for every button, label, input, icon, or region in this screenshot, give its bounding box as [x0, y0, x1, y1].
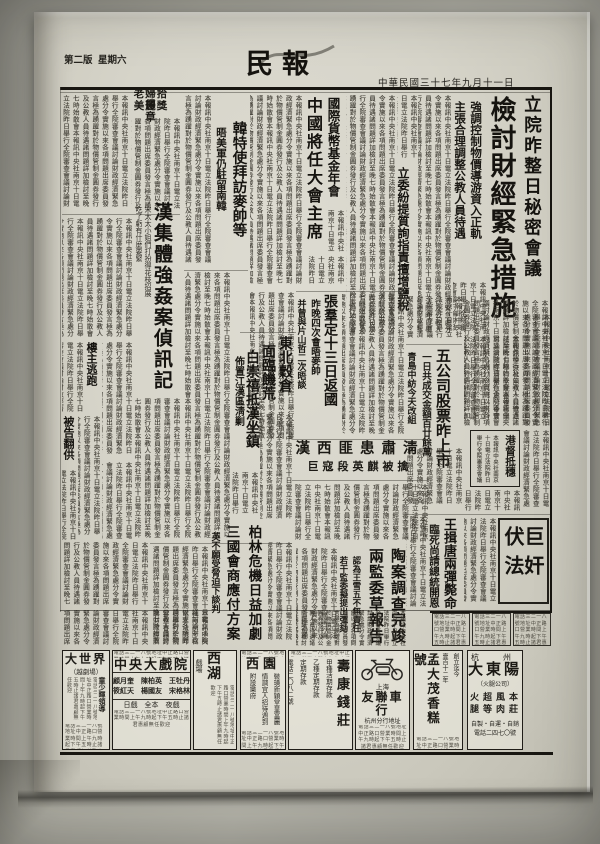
weekday-label: 星期六 [98, 52, 127, 66]
divider [60, 610, 552, 611]
ad-zhongyang-cast-row2: 筱紅天 楊國友 宋格林 [113, 686, 190, 696]
ad-body-text: 電話三二一八號地址中正路口營業時間上午九時起下午五時止諸君惠顧無任歡迎 [289, 651, 352, 657]
imf-kicker: 國際貨幣基金年會 [326, 97, 339, 207]
rape-case-subhead-2: 被告翻供 [62, 416, 73, 466]
berlin-subheadline: 英不願受脅迫下談判 [210, 532, 219, 640]
ad-dadongyang-sub: （火腿公司） [468, 679, 522, 688]
left-frame-rule [60, 87, 61, 612]
divider [150, 543, 292, 544]
ad-body-text: 電話三二一八號地址中正路口營業時間上午九時起下午五時止諸君惠顧無任歡迎 [65, 677, 97, 721]
body-text: 本報訊中央社南京十日電立法院昨日舉行全院審查會議討論財政經濟緊急處分令實施以來各… [326, 210, 344, 256]
ad-body-text: 電話三二一八號地址中正路口營業時間上午九時起下午五時止諸君惠顧無任歡迎 [113, 710, 190, 730]
body-text: 本報訊中央社南京十日電立法院昨日舉行全院審查會議討論財政經濟緊急處分令實施以來各… [306, 256, 344, 290]
ad-mengdamao-cake-shop: 創立迄今 壹百十二年 孟大茂香糕號 ※土產馳譽 ※獨步第一 電話三二一八號地址中… [413, 650, 463, 750]
body-text: 本報訊中央社南京十日電立法院昨日舉行全院審查會議討論財政經濟緊急處分令實施以來各… [260, 414, 292, 520]
ad-shoukang-phone: 電話二〇八二號 [288, 659, 293, 745]
ad-xihu-sub: 戲場 [194, 659, 204, 677]
bandit-headline: 漢西匪患肅淸 [292, 442, 428, 457]
masthead-title: 民報 [246, 42, 318, 81]
ad-body-text: 電話三二一八號地址中正路口營業時間上午九時起下午五時止諸君惠顧無任歡迎 [63, 724, 109, 750]
ad-zhongyang-theater: 電話三二一八號地址中正路口營業時間上午九時起下午五時止諸君惠顧無任歡迎 中央大戲… [112, 650, 191, 750]
ad-shoukang-line2: 乙種定期存款 [309, 659, 319, 745]
body-text: 本報訊中央社南京十日電立法院昨日舉行全院審查會議討論財政經濟緊急處分令實施以來各… [78, 416, 100, 540]
zhangqun-headline: 張羣定十三日返國 [322, 294, 336, 426]
ad-body-text: 電話三二一八號地址中正路口營業時間上午九時起下午五時止諸君惠顧無任歡迎 [414, 737, 462, 750]
ad-youlian-bicycle-shop: 上海 友聯車行 杭州分行地址 電話三二一八號地址中正路口營業時間上午九時起下午五… [355, 650, 410, 750]
ad-mengdamao-kicker-1: 創立迄今 [451, 653, 460, 735]
divider [184, 270, 248, 271]
body-text: 本報訊中央社南京十日電立法院昨日舉行全院審查會議討論財政經濟緊急處分令實施以來各… [406, 516, 426, 608]
body-text: 本報訊中央社南京十日電立法院昨日舉行全院審查會議討論財政經濟緊急處分令實施以來各… [268, 542, 292, 646]
ad-xiyuan-line2: 情調宜人招待週到 [258, 673, 268, 731]
body-text: 本報訊中央社南京十日電立法院昨日舉行全院審查會議討論財政經濟緊急處分令實施以來各… [134, 398, 180, 542]
body-text: 本報訊中央社南京十日電立法院昨日舉行全院審查會議討論財政經濟緊急處分令實施以來各… [62, 542, 148, 608]
korea-subheadline: 晤美軍仍駐留南韓 [215, 127, 226, 253]
body-text: 本報訊中央社南京十日電立法院昨日舉行全院審查會議討論財政經濟緊急處分令實施以來各… [250, 95, 302, 289]
traitor-box-headline: 巨奸伏法 [502, 526, 542, 598]
lead-subheadline-2: 主張合理調整公教人員待遇 [453, 101, 465, 277]
ad-body-text: 電話三二一八號地址中正路口營業時間上午九時起下午五時止諸君惠顧無任歡迎 [356, 725, 409, 750]
divider [292, 480, 428, 481]
body-text: 本報訊中央社南京十日電立法院昨日舉行全院審查會議討論財政經濟緊急處分令實施以來各… [406, 296, 462, 342]
notice-strip: 電話三二一八號地址中正路口營業時間上午九時起下午五時止諸君惠顧無任歡迎 電話三二… [432, 613, 551, 646]
ad-shoukang-bank: 電話三二一八號地址中正路口營業時間上午九時起下午五時止諸君惠顧無任歡迎 壽康錢莊… [288, 650, 353, 750]
rape-case-intro-2: 吃了虧有什麼要緊 [134, 206, 144, 388]
ad-mengdamao-kicker-2: 壹百十二年 [440, 653, 449, 735]
ad-zhongyang-showtimes: 日戲 全本 夜戲 [113, 699, 190, 710]
body-text: 本報訊中央社南京十日電立法院昨日舉行全院審查會議討論財政經濟緊急處分令實施以來各… [232, 472, 258, 520]
lead-headline: 檢討財經緊急措施 [488, 96, 514, 334]
traitor-headline: 王揖唐兩彈斃命 [443, 518, 456, 618]
ad-body-text: 電話三二一八號地址中正路口營業時間上午九時起下午五時止諸君惠顧無任歡迎 [196, 685, 234, 747]
ad-dadongyang-line: 自製・自運・自銷 [468, 719, 522, 728]
body-text: 本報訊中央社南京十日電立法院昨日舉行全院審查會議討論財政經濟緊急處分令實施以來各… [150, 610, 208, 646]
ad-shoukang-line1: 甲種活期存款 [322, 659, 332, 745]
ad-xiyuan-name: 西園 [241, 657, 285, 671]
body-text: 本報訊中央社南京十日電立法院昨日舉行全院審查會議討論財政經濟緊急處分令實施以來各… [464, 518, 496, 608]
lead-subheadline-1: 強調控制物價導游資入正軌 [469, 101, 481, 277]
hk-governor-headline: 港督抵穗 [504, 435, 515, 483]
traitor-subheadline: 臨死尚請總統開恩 [428, 524, 439, 616]
lead-kicker: 立院昨整日秘密會議 [523, 95, 541, 310]
traitor-box: 巨奸伏法 [498, 518, 549, 604]
ad-body-text: 電話三二一八號地址中正路口營業時間上午九時起下午五時止諸君惠顧無任歡迎 [113, 651, 190, 658]
rape-case-headline: 漢集體強姦案偵訊記 [152, 202, 171, 398]
body-text: 本報訊中央社南京十日電立法院昨日舉行全院審查會議討論財政經濟緊急處分令實施以來各… [522, 430, 549, 510]
body-text: 本報訊中央社南京十日電立法院昨日舉行全院審查會議討論財政經濟緊急處分令實施以來各… [102, 342, 132, 460]
ad-xiyuan-line3: 附設樂府 [246, 673, 256, 731]
bandit-subheadline: 巨寇段英麒被擒 [298, 462, 422, 474]
ad-dadongyang-name: 大東陽 [468, 663, 522, 679]
body-text: 本報訊中央社南京十日電立法院昨日舉行全院審查會議討論財政經濟緊急處分令實施以來各… [475, 435, 499, 483]
ad-zhongyang-name: 中央大戲院 [113, 658, 190, 673]
body-text: 本報訊中央社南京十日電立法院昨日舉行全院審查會議討論財政經濟緊急處分令實施以來各… [62, 610, 148, 646]
body-text: 本報訊中央社南京十日電立法院昨日舉行全院審查會議討論財政經濟緊急處分令實施以來各… [62, 95, 128, 211]
paper-fold-shadow [18, 786, 593, 808]
notice-box: 電話三二一八號地址中正路口營業時間上午九時起下午五時止諸君惠顧無任歡迎 [472, 613, 510, 646]
divider [406, 514, 550, 515]
bottom-rule [60, 752, 553, 755]
body-text: 本報訊中央社南京十日電立法院昨日舉行全院審查會議討論財政經濟緊急處分令實施以來各… [183, 95, 211, 267]
granary-headline-line1: 東北穀倉 [277, 336, 291, 404]
body-text: 本報訊中央社南京十日電立法院昨日舉行全院審查會議討論財政經濟緊急處分令實施以來各… [464, 490, 520, 512]
body-text: 本報訊中央社南京十日電立法院昨日舉行全院審查會議討論財政經濟緊急處分令實施以來各… [102, 462, 132, 540]
stocks-subheadline-2: 青島中紡今天改組 [406, 352, 415, 446]
ad-mengdamao-name: 孟大茂香糕號 [413, 653, 438, 735]
body-text: 本報訊中央社南京十日電立法院昨日舉行全院審查會議討論財政經濟緊急處分令實施以來各… [464, 300, 548, 426]
zhangqun-subheadline-2: 并曾與片山哲二次晤談 [296, 299, 305, 421]
korea-headline: 韓特使拜訪麥帥等 [231, 121, 246, 269]
ad-xiyuan-line1: 裝璜新穎堂皇富麗 [270, 673, 280, 731]
body-text: 本報訊中央社南京十日電立法院昨日舉行全院審查會議討論財政經濟緊急處分令實施以來各… [342, 294, 404, 440]
body-text: 本報訊中央社南京十日電立法院昨日舉行全院審查會議討論財政經濟緊急處分令實施以來各… [397, 95, 417, 161]
ad-youlian-name: 友聯車行 [356, 691, 409, 716]
body-text: 本報訊中央社南京十日電立法院昨日舉行全院審查會議討論財政經濟緊急處分令實施以來各… [62, 470, 76, 540]
berlin-headline-line2: 三國會商應付方案 [225, 525, 239, 645]
bai-headline: 白崇禧抵漢坐鎮 [244, 350, 258, 470]
right-frame-rule [550, 87, 552, 612]
bai-subheadline: 佈置江漢區淸剿 [232, 356, 243, 456]
ad-xiyuan: 電話三二一八號地址中正路口營業時間上午九時起下午五時止諸君惠顧無任歡迎 西園 附… [240, 650, 286, 750]
body-text: 本報訊中央社南京十日電立法院昨日舉行全院審查會議討論財政經濟緊急處分令實施以來各… [296, 610, 406, 646]
ad-youlian-branch: 杭州分行地址 [356, 716, 409, 725]
tricycle-illustration [357, 653, 409, 681]
ad-dadongyang-phone: 電話二四七〇號 [468, 728, 522, 737]
rape-case-intro-1: 宋太太小姐們打扮得花枝招展 [143, 206, 153, 388]
ad-zhongyang-cast-row1: 顧月奎 陳柏英 王牡丹 [113, 676, 190, 686]
divider [296, 291, 406, 292]
ad-body-text: 電話三二一八號地址中正路口營業時間上午九時起下午五時止諸君惠顧無任歡迎 [241, 651, 285, 657]
ad-dashijie-line: 童少暉領導 [97, 677, 107, 721]
ad-dashijie: 大世界 （越劇場） 電話三二一八號地址中正路口營業時間上午九時起下午五時止諸君惠… [62, 650, 110, 750]
imf-headline: 中國將任大會主席 [304, 97, 320, 253]
granary-headline-line2: 面臨饑荒 [260, 344, 274, 412]
body-text: 本報訊中央社南京十日電立法院昨日舉行全院審查會議討論財政經濟緊急處分令實施以來各… [131, 118, 180, 212]
ad-body-text: 電話三二一八號地址中正路口營業時間上午九時起下午五時止諸君惠顧無任歡迎 [241, 731, 285, 750]
divider [406, 344, 462, 345]
ad-shoukang-name: 壽康錢莊 [335, 659, 349, 745]
newspaper-scan-photo: 第二版 星期六 民報 中華民國三十七年九月十一日 立院昨整日秘密會議 檢討財經緊… [0, 0, 600, 844]
ad-xihu-theater: 戲場 西湖 電話三二一八號地址中正路口營業時間上午九時起下午五時止諸君惠顧無任歡… [193, 650, 237, 750]
hk-governor-box: 港督抵穗 本報訊中央社南京十日電立法院昨日舉行全院審查會議討論財政經濟緊急處分令… [470, 430, 520, 487]
ad-xihu-name: 西湖 [207, 653, 236, 682]
ad-dadongyang-ham-shop: 杭 州 大東陽 （火腿公司） 本莊風肉超等火腿 自製・自運・自銷 電話二四七〇號 [467, 650, 523, 750]
body-text: 本報訊中央社南京十日電立法院昨日舉行全院審查會議討論財政經濟緊急處分令實施以來各… [185, 272, 230, 540]
body-text: 本報訊中央社南京十日電立法院昨日舉行全院審查會議討論財政經濟緊急處分令實施以來各… [62, 342, 83, 412]
ad-dashijie-sub: （越劇場） [63, 666, 109, 676]
divider [292, 439, 428, 440]
rape-case-subhead-1: 樓主逃跑 [85, 342, 96, 394]
ad-dashijie-name: 大世界 [63, 653, 109, 666]
divider [240, 332, 296, 333]
ad-shoukang-line3: 定期存款 [296, 659, 306, 745]
zhangqun-subheadline-1: 昨晚四次會晤麥帥 [308, 299, 318, 407]
ad-dadongyang-products: 本莊風肉超等火腿 [470, 689, 520, 719]
body-text: 本報訊中央社南京十日電立法院昨日舉行全院審查會議討論財政經濟緊急處分令實施以來各… [62, 218, 132, 338]
edition-label: 第二版 [64, 52, 93, 66]
berlin-headline-line1: 柏林危機日益加劇 [247, 525, 261, 645]
notice-box: 電話三二一八號地址中正路口營業時間上午九時起下午五時止諸君惠顧無任歡迎 [432, 613, 470, 646]
notice-box: 電話三二一八號地址中正路口營業時間上午九時起下午五時止諸君惠顧無任歡迎 [513, 613, 551, 646]
